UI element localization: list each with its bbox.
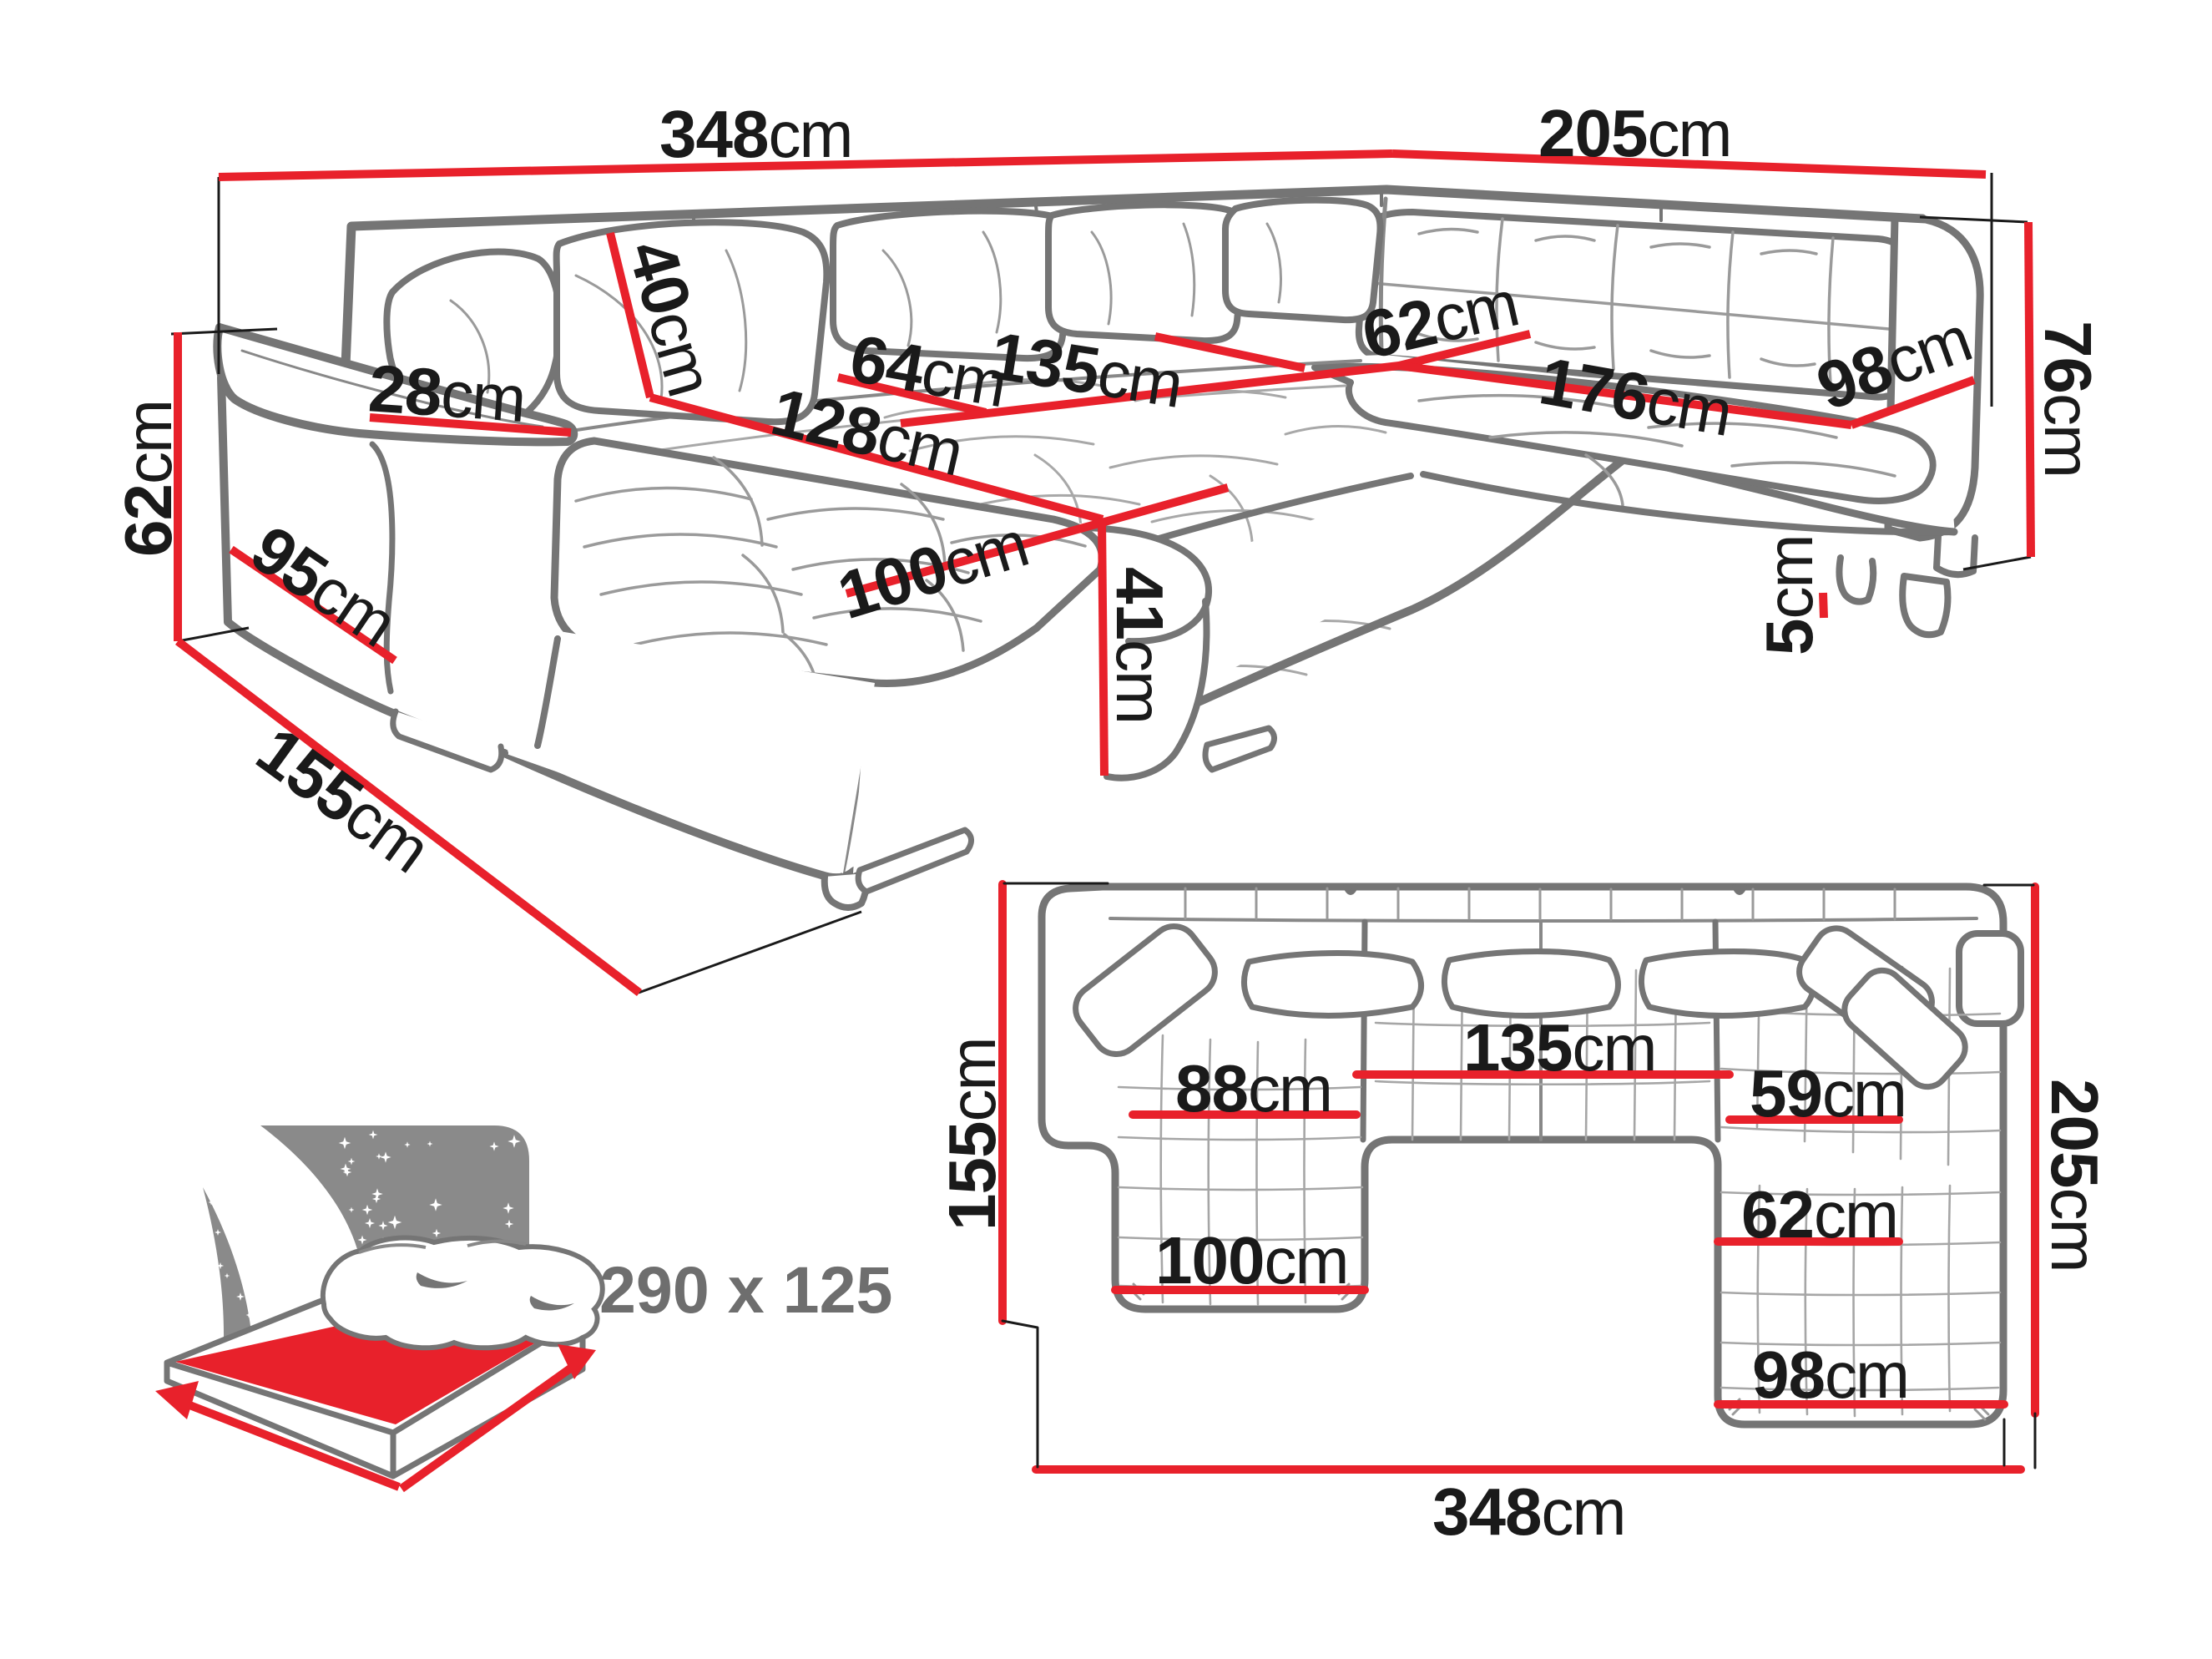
svg-text:62cm: 62cm — [1741, 1177, 1897, 1252]
svg-text:155cm: 155cm — [935, 1039, 1009, 1231]
svg-text:135cm: 135cm — [1463, 1010, 1655, 1085]
svg-text:205cm: 205cm — [2038, 1079, 2112, 1271]
svg-text:98cm: 98cm — [1752, 1338, 1908, 1412]
svg-text:348cm: 348cm — [659, 97, 851, 171]
svg-text:62cm: 62cm — [111, 401, 185, 557]
svg-text:76cm: 76cm — [2031, 321, 2105, 477]
svg-text:5cm: 5cm — [1752, 536, 1826, 655]
svg-text:59cm: 59cm — [1750, 1056, 1906, 1130]
svg-text:348cm: 348cm — [1432, 1474, 1624, 1549]
svg-text:88cm: 88cm — [1175, 1051, 1331, 1125]
svg-text:100cm: 100cm — [1155, 1223, 1347, 1297]
svg-text:41cm: 41cm — [1103, 567, 1177, 723]
svg-text:205cm: 205cm — [1538, 96, 1730, 170]
svg-text:290 x 125: 290 x 125 — [599, 1252, 892, 1327]
svg-text:28cm: 28cm — [366, 351, 528, 436]
